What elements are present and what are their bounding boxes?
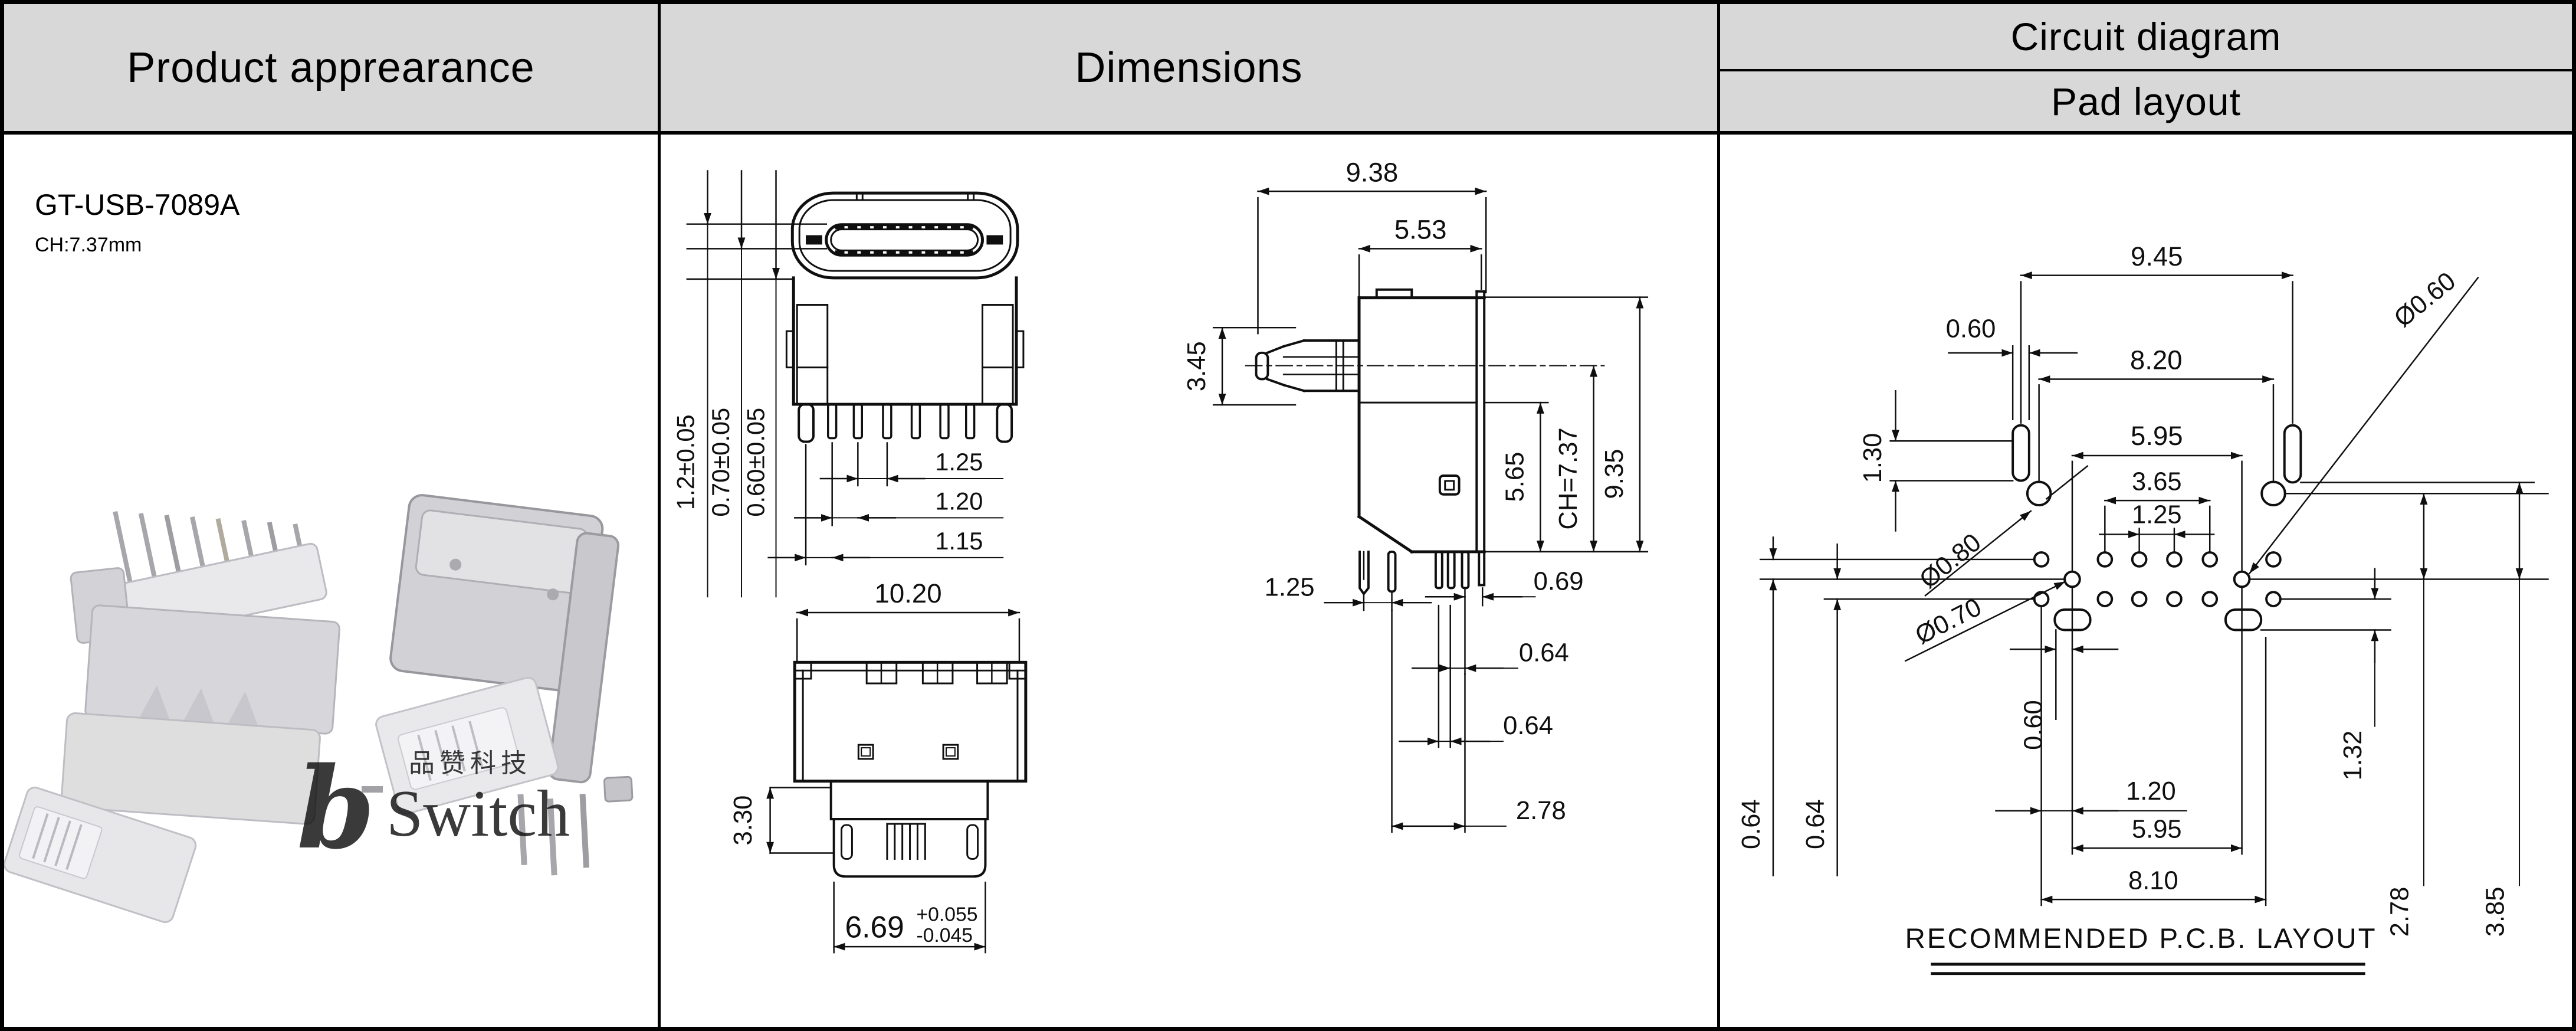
side-dim-5.53: 5.53 <box>1394 214 1447 244</box>
side-dim-0.64a: 0.64 <box>1519 639 1569 667</box>
part-number: GT-USB-7089A <box>35 188 239 222</box>
bottom-dim-6.69: 6.69 <box>845 909 904 944</box>
panel-dimensions: 1.2±0.05 0.70±0.05 0.60±0.05 1.25 1.20 <box>661 135 1717 1027</box>
side-dim-0.64b: 0.64 <box>1503 712 1553 740</box>
panel-pad-layout: 9.45 8.20 0.60 1.30 <box>1720 135 2572 1027</box>
side-dim-2.78: 2.78 <box>1516 797 1566 825</box>
watermark-name: Switch <box>386 777 570 850</box>
bottom-dim-10.20: 10.20 <box>875 578 942 608</box>
front-pitch-1.25: 1.25 <box>935 448 983 476</box>
header-dimensions-label: Dimensions <box>1075 44 1302 92</box>
bottom-view-drawing: 10.20 <box>729 578 1026 953</box>
header-dimensions: Dimensions <box>661 4 1717 131</box>
pcb-caption: RECOMMENDED P.C.B. LAYOUT <box>1905 923 2377 973</box>
side-dim-5.65: 5.65 <box>1501 452 1530 502</box>
pad-dimensions: 9.45 8.20 0.60 1.30 <box>1737 241 2548 937</box>
product-photo: 品赞科技 b Switch <box>4 135 658 1027</box>
pad-dim-dia-0.60: Ø0.60 <box>2389 267 2461 333</box>
pad-dim-5.95-bottom: 5.95 <box>2132 815 2182 843</box>
pad-dim-0.60-top: 0.60 <box>1946 315 1996 343</box>
pad-dim-dia-0.70: Ø0.70 <box>1911 593 1986 650</box>
bottom-tol-plus: +0.055 <box>916 904 977 926</box>
pad-dim-dia-0.80: Ø0.80 <box>1914 528 1986 594</box>
front-dim-0.60: 0.60±0.05 <box>742 408 770 517</box>
pad-dim-9.45: 9.45 <box>2131 241 2183 271</box>
pad-dim-3.85: 3.85 <box>2481 887 2509 937</box>
side-view-drawing: 9.38 5.53 <box>1183 157 1648 832</box>
front-dim-1.2: 1.2±0.05 <box>672 414 700 510</box>
pad-dim-8.10: 8.10 <box>2128 866 2178 895</box>
header-circuit-diagram-label: Circuit diagram <box>2011 14 2282 59</box>
watermark: 品赞科技 b Switch <box>297 742 570 874</box>
side-dim-ch737: CH=7.37 <box>1554 427 1583 529</box>
pad-dim-0.64b: 0.64 <box>1801 799 1830 849</box>
header-product-appearance-label: Product apprearance <box>127 44 534 92</box>
side-dim-3.45: 3.45 <box>1183 341 1211 391</box>
side-dim-9.35: 9.35 <box>1600 449 1629 499</box>
pad-dim-0.64a: 0.64 <box>1737 799 1766 849</box>
dimension-drawings: 1.2±0.05 0.70±0.05 0.60±0.05 1.25 1.20 <box>661 135 1717 1027</box>
front-pitch-1.15: 1.15 <box>935 527 983 555</box>
bottom-tol-minus: -0.045 <box>916 924 973 947</box>
pcb-caption-label: RECOMMENDED P.C.B. LAYOUT <box>1905 923 2377 954</box>
front-dim-0.70: 0.70±0.05 <box>707 408 734 517</box>
side-dim-1.25: 1.25 <box>1265 573 1315 601</box>
side-dim-0.69: 0.69 <box>1534 567 1584 595</box>
watermark-b: b <box>297 742 375 874</box>
pad-dim-2.78: 2.78 <box>2385 887 2414 937</box>
pcb-layout-drawing: 9.45 8.20 0.60 1.30 <box>1720 135 2572 1027</box>
panel-product-appearance: GT-USB-7089A CH:7.37mm <box>4 135 658 1027</box>
pad-dim-8.20: 8.20 <box>2130 345 2182 375</box>
pad-dim-1.20: 1.20 <box>2126 777 2176 806</box>
front-pitch-1.20: 1.20 <box>935 487 983 515</box>
pad-dim-1.32: 1.32 <box>2339 731 2367 781</box>
datasheet-page: Product apprearance Dimensions Circuit d… <box>0 0 2576 1031</box>
pad-dim-1.30: 1.30 <box>1859 433 1887 483</box>
bottom-dim-3.30: 3.30 <box>729 796 757 846</box>
header-pad-layout-label: Pad layout <box>2051 79 2241 124</box>
pad-dim-5.95-top: 5.95 <box>2131 421 2183 451</box>
part-ch-height: CH:7.37mm <box>35 234 142 257</box>
front-view-drawing: 1.2±0.05 0.70±0.05 0.60±0.05 1.25 1.20 <box>672 171 1023 597</box>
side-dim-9.38: 9.38 <box>1346 157 1398 187</box>
pad-dim-3.65: 3.65 <box>2132 467 2182 496</box>
watermark-cn: 品赞科技 <box>409 749 531 778</box>
watermark-dash <box>362 786 383 793</box>
pad-dim-0.60-bottom: 0.60 <box>2020 700 2048 750</box>
header-product-appearance: Product apprearance <box>4 4 658 131</box>
header-pad-layout: Pad layout <box>1720 71 2572 131</box>
header-circuit-diagram: Circuit diagram <box>1720 4 2572 69</box>
pad-dim-1.25: 1.25 <box>2132 501 2182 529</box>
